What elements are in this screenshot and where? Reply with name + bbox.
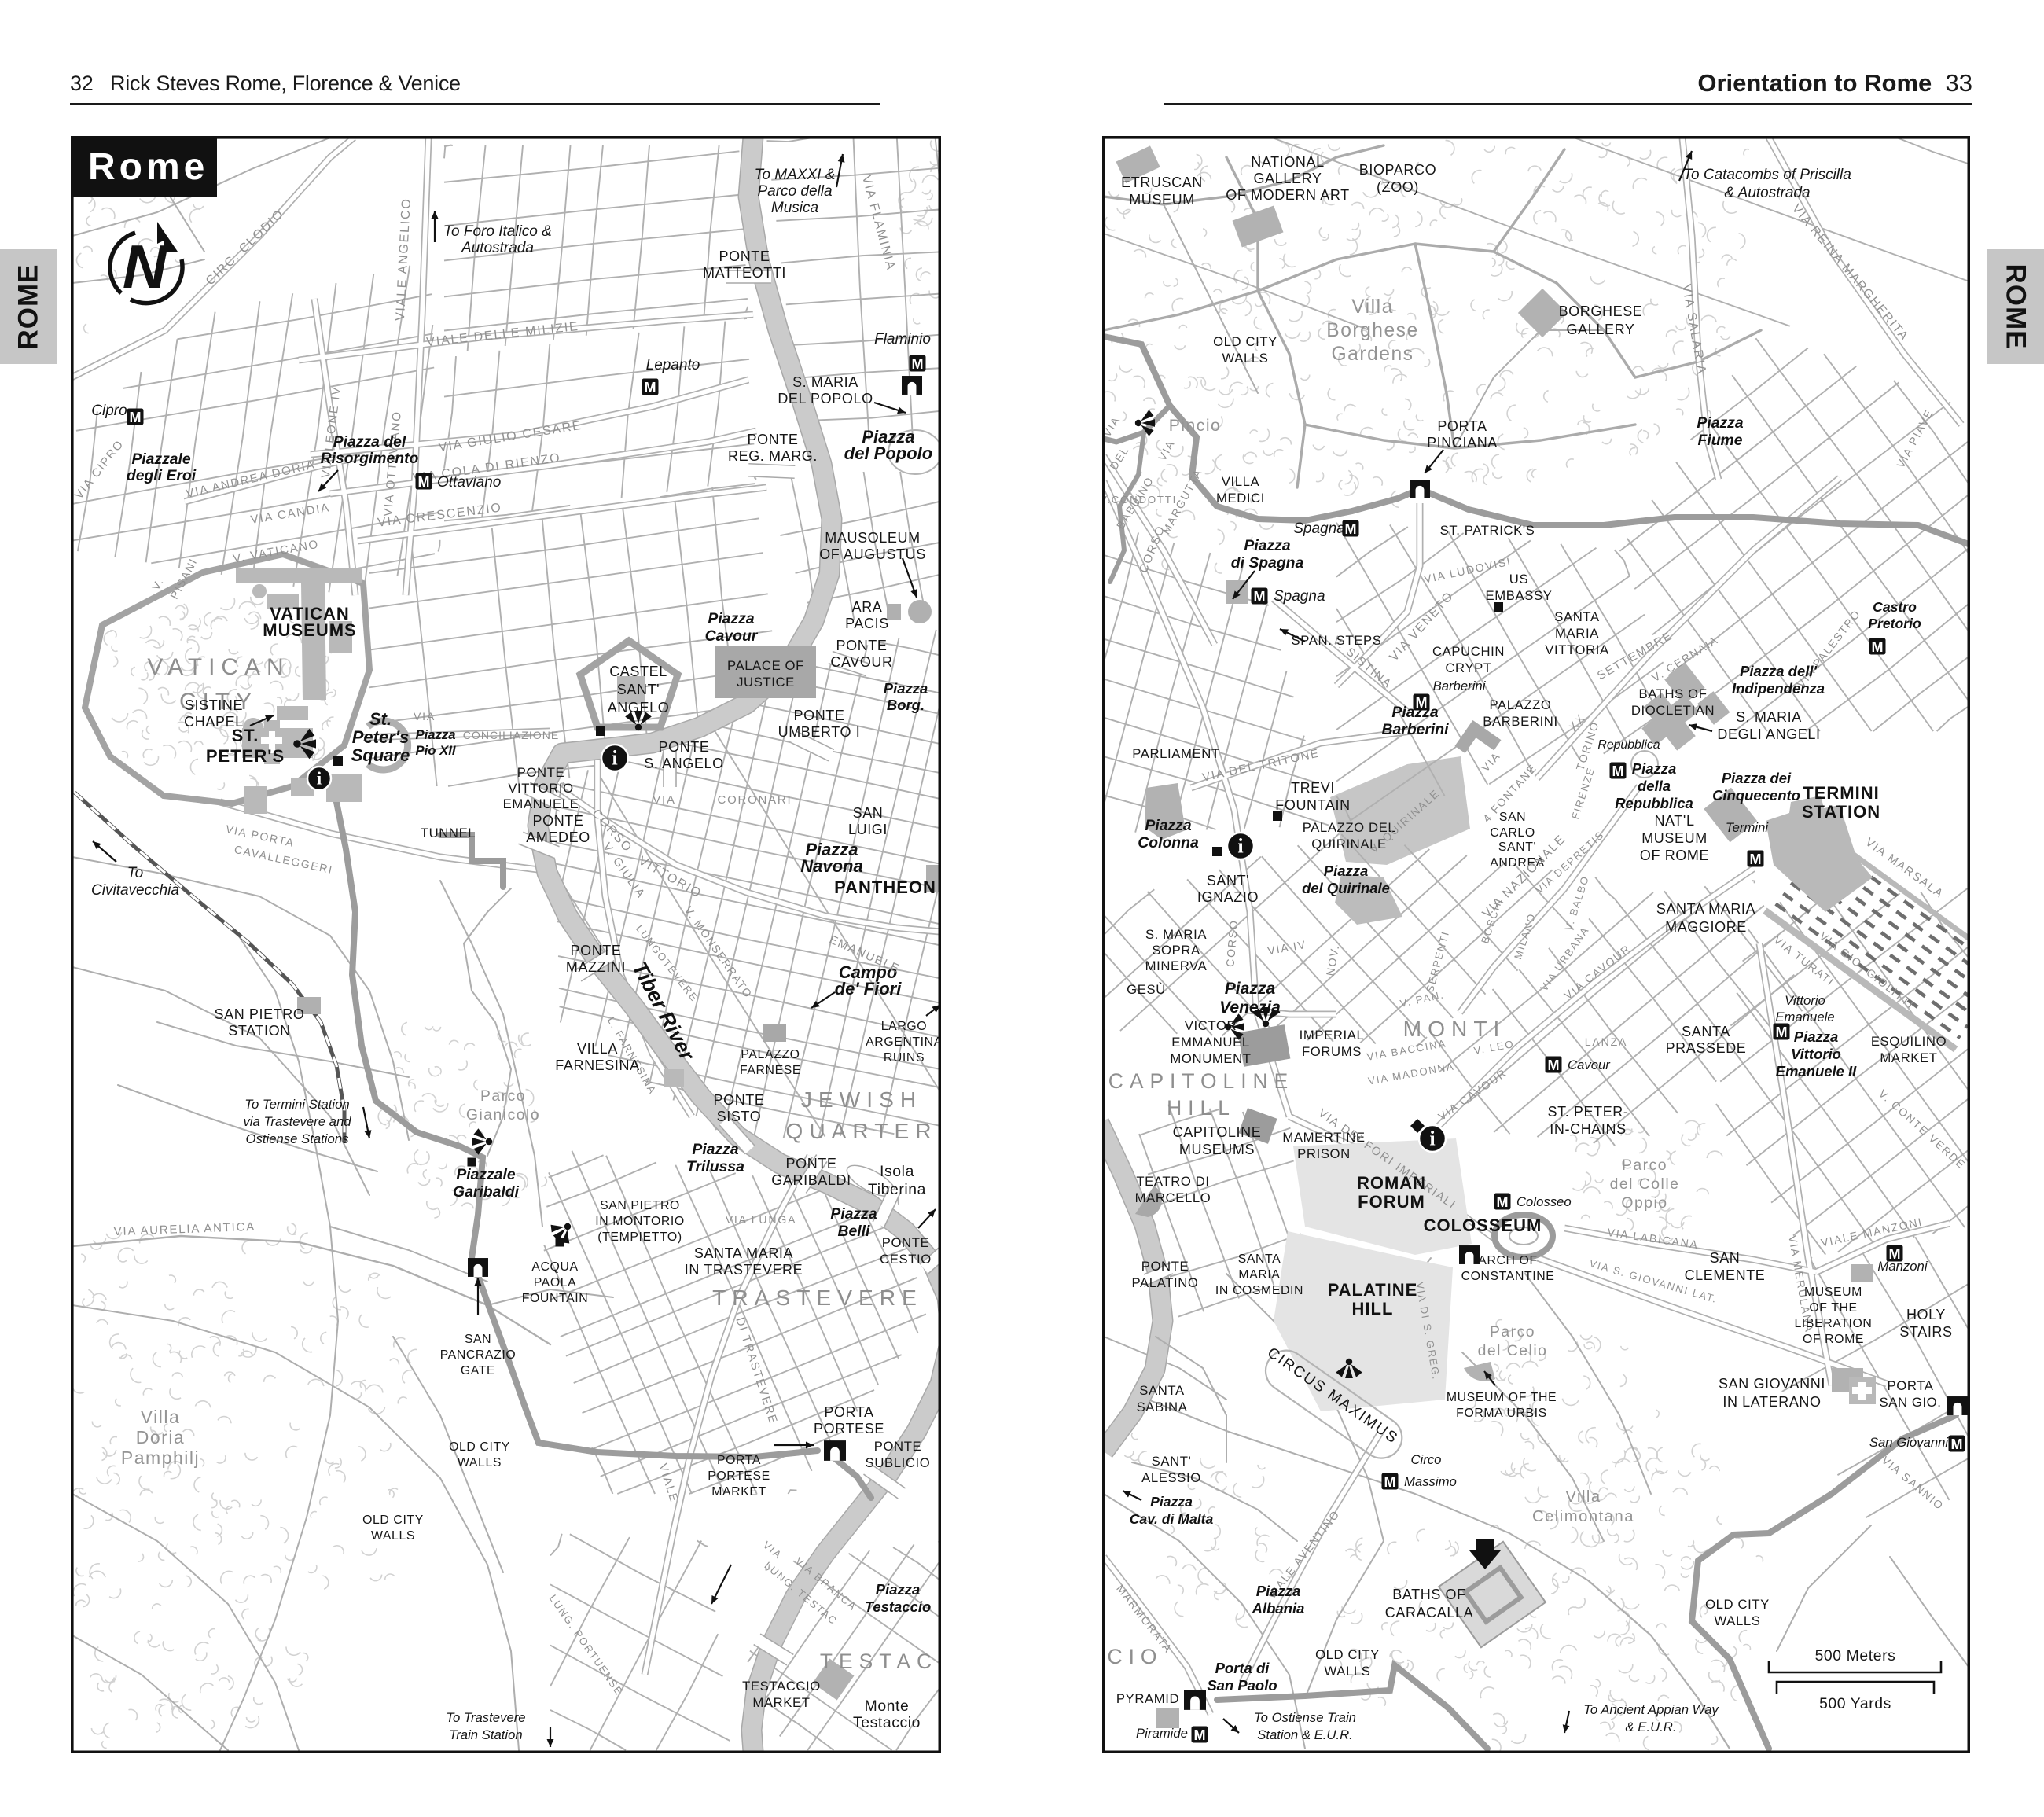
svg-text:M: M bbox=[417, 474, 429, 490]
svg-text:Spagna: Spagna bbox=[1293, 520, 1345, 537]
svg-text:VIA IV: VIA IV bbox=[1266, 938, 1307, 957]
svg-text:Celimontana: Celimontana bbox=[1532, 1508, 1634, 1525]
svg-text:M: M bbox=[1749, 851, 1761, 867]
svg-text:MARKET: MARKET bbox=[711, 1485, 766, 1499]
svg-text:OLD CITY: OLD CITY bbox=[1315, 1647, 1380, 1662]
svg-text:CLEMENTE: CLEMENTE bbox=[1685, 1267, 1766, 1283]
svg-text:Villa: Villa bbox=[1565, 1488, 1601, 1506]
svg-text:BATHS OF: BATHS OF bbox=[1638, 686, 1707, 701]
svg-text:VIA PIAVE: VIA PIAVE bbox=[1894, 406, 1936, 469]
svg-text:TUNNEL: TUNNEL bbox=[421, 826, 476, 840]
svg-text:VILLA: VILLA bbox=[1222, 474, 1260, 489]
svg-text:OF AUGUSTUS: OF AUGUSTUS bbox=[819, 546, 926, 562]
svg-text:WALLS: WALLS bbox=[371, 1529, 415, 1543]
svg-text:SANTA: SANTA bbox=[1238, 1252, 1281, 1266]
svg-text:PONTE: PONTE bbox=[517, 765, 565, 780]
svg-text:Barberini: Barberini bbox=[1382, 721, 1450, 738]
svg-text:STAIRS: STAIRS bbox=[1899, 1324, 1952, 1340]
svg-text:M: M bbox=[911, 356, 923, 372]
svg-text:CORONARI: CORONARI bbox=[718, 793, 792, 807]
svg-text:IN-CHAINS: IN-CHAINS bbox=[1550, 1121, 1626, 1137]
svg-text:Piazzale: Piazzale bbox=[456, 1166, 516, 1183]
svg-text:PONTE: PONTE bbox=[713, 1092, 764, 1108]
svg-text:M: M bbox=[644, 380, 656, 395]
svg-text:Borg.: Borg. bbox=[887, 697, 925, 713]
svg-text:SAN GIOVANNI: SAN GIOVANNI bbox=[1719, 1376, 1825, 1392]
svg-text:TRASTEVERE: TRASTEVERE bbox=[712, 1286, 923, 1310]
svg-text:MILANO: MILANO bbox=[1512, 911, 1538, 961]
svg-text:EMANUELE: EMANUELE bbox=[503, 796, 579, 811]
svg-text:EMMANUEL: EMMANUEL bbox=[1171, 1035, 1249, 1050]
svg-text:MUSEUM: MUSEUM bbox=[1129, 192, 1195, 208]
svg-text:ALESSIO: ALESSIO bbox=[1141, 1470, 1201, 1485]
svg-text:TERMINI: TERMINI bbox=[1803, 783, 1879, 803]
svg-text:i: i bbox=[612, 747, 617, 770]
svg-text:del Quirinale: del Quirinale bbox=[1302, 880, 1390, 896]
svg-text:Parco: Parco bbox=[480, 1087, 526, 1105]
svg-text:VIA: VIA bbox=[1102, 414, 1123, 439]
svg-text:LUNG. PORTUENSE: LUNG. PORTUENSE bbox=[547, 1593, 626, 1698]
svg-text:Cavour: Cavour bbox=[705, 627, 759, 645]
svg-text:STATION: STATION bbox=[228, 1023, 291, 1039]
svg-text:(ZOO): (ZOO) bbox=[1377, 179, 1419, 195]
svg-text:i: i bbox=[317, 769, 322, 789]
svg-text:Piazza: Piazza bbox=[1256, 1583, 1300, 1599]
svg-text:FORUM: FORUM bbox=[1358, 1192, 1425, 1212]
svg-text:MARKET: MARKET bbox=[1880, 1050, 1937, 1065]
svg-text:SAN: SAN bbox=[853, 805, 884, 821]
svg-text:PRASSEDE: PRASSEDE bbox=[1666, 1040, 1747, 1056]
svg-text:GESÙ: GESÙ bbox=[1127, 982, 1166, 997]
svg-text:Piazza: Piazza bbox=[1244, 537, 1290, 554]
svg-text:GALLERY: GALLERY bbox=[1254, 171, 1322, 186]
svg-text:CAVALLEGGERI: CAVALLEGGERI bbox=[233, 843, 335, 876]
svg-text:ARA: ARA bbox=[852, 599, 883, 615]
svg-text:del Popolo: del Popolo bbox=[844, 443, 932, 463]
svg-text:de' Fiori: de' Fiori bbox=[835, 979, 903, 999]
svg-text:PORTA: PORTA bbox=[824, 1404, 873, 1420]
svg-text:LANZA: LANZA bbox=[1585, 1035, 1627, 1048]
svg-text:FORMA URBIS: FORMA URBIS bbox=[1456, 1407, 1547, 1420]
svg-text:CONSTANTINE: CONSTANTINE bbox=[1461, 1270, 1555, 1283]
svg-text:PONTE: PONTE bbox=[785, 1156, 836, 1171]
svg-text:PALACE OF: PALACE OF bbox=[727, 658, 804, 673]
svg-text:MARIA: MARIA bbox=[1555, 626, 1599, 641]
svg-text:BORGHESE: BORGHESE bbox=[1559, 303, 1643, 319]
svg-text:San Giovanni: San Giovanni bbox=[1869, 1435, 1950, 1450]
svg-text:MUSEUMS: MUSEUMS bbox=[263, 620, 356, 640]
svg-text:PALATINE: PALATINE bbox=[1328, 1280, 1418, 1300]
svg-text:PORTESE: PORTESE bbox=[708, 1469, 770, 1483]
svg-text:VIA: VIA bbox=[1156, 437, 1177, 462]
svg-text:PACIS: PACIS bbox=[845, 616, 889, 631]
svg-text:GATE: GATE bbox=[461, 1364, 495, 1377]
svg-text:Pio XII: Pio XII bbox=[415, 743, 455, 758]
svg-text:M: M bbox=[1384, 1474, 1395, 1490]
svg-text:SAN: SAN bbox=[1710, 1250, 1741, 1266]
svg-text:Piazza: Piazza bbox=[708, 610, 754, 627]
svg-text:VITTORIA: VITTORIA bbox=[1545, 642, 1609, 657]
svg-text:FARNESE: FARNESE bbox=[740, 1064, 801, 1077]
svg-text:IN MONTORIO: IN MONTORIO bbox=[595, 1215, 685, 1228]
svg-text:IN LATERANO: IN LATERANO bbox=[1722, 1394, 1821, 1410]
svg-text:Station & E.U.R.: Station & E.U.R. bbox=[1257, 1727, 1353, 1742]
svg-text:PORTA: PORTA bbox=[717, 1454, 761, 1467]
svg-text:Ottaviano: Ottaviano bbox=[437, 474, 501, 491]
svg-text:US: US bbox=[1509, 572, 1528, 587]
svg-text:OLD CITY: OLD CITY bbox=[1705, 1597, 1770, 1612]
svg-text:Pamphilj: Pamphilj bbox=[121, 1447, 200, 1468]
svg-text:via Trastevere and: via Trastevere and bbox=[243, 1114, 351, 1129]
svg-text:Square: Square bbox=[351, 745, 410, 765]
svg-text:Villa: Villa bbox=[141, 1407, 181, 1427]
svg-text:OF MODERN ART: OF MODERN ART bbox=[1226, 187, 1349, 203]
svg-text:GALLERY: GALLERY bbox=[1567, 322, 1635, 337]
svg-text:Peter's: Peter's bbox=[352, 727, 410, 747]
svg-text:PONTE: PONTE bbox=[1141, 1259, 1189, 1274]
svg-text:MINERVA: MINERVA bbox=[1145, 958, 1208, 973]
svg-text:PONTE: PONTE bbox=[874, 1439, 922, 1454]
svg-text:SAN: SAN bbox=[1499, 811, 1526, 824]
svg-text:PAOLA: PAOLA bbox=[534, 1276, 577, 1289]
svg-text:To Trastevere: To Trastevere bbox=[446, 1710, 525, 1725]
svg-text:Piazza dei: Piazza dei bbox=[1722, 770, 1792, 786]
svg-text:CAPITOLINE: CAPITOLINE bbox=[1108, 1069, 1294, 1093]
svg-text:Cavour: Cavour bbox=[1568, 1057, 1611, 1072]
svg-text:OF ROME: OF ROME bbox=[1803, 1333, 1864, 1346]
svg-text:Colonna: Colonna bbox=[1138, 834, 1199, 851]
svg-text:CAPUCHIN: CAPUCHIN bbox=[1432, 644, 1505, 659]
svg-text:VIA CIPRO: VIA CIPRO bbox=[72, 437, 127, 502]
svg-text:Vittorio: Vittorio bbox=[1791, 1046, 1841, 1062]
svg-text:Oppio: Oppio bbox=[1621, 1194, 1667, 1212]
svg-text:CASTEL: CASTEL bbox=[609, 664, 667, 679]
svg-text:BATHS OF: BATHS OF bbox=[1392, 1587, 1465, 1602]
svg-text:Testaccio: Testaccio bbox=[853, 1714, 921, 1731]
svg-text:To Ancient Appian Way: To Ancient Appian Way bbox=[1583, 1702, 1719, 1717]
svg-text:SANT': SANT' bbox=[1207, 873, 1249, 888]
svg-text:Garibaldi: Garibaldi bbox=[453, 1183, 520, 1201]
svg-text:SISTINE: SISTINE bbox=[185, 697, 243, 713]
svg-text:HILL: HILL bbox=[1352, 1299, 1394, 1319]
svg-text:Borghese: Borghese bbox=[1326, 320, 1418, 341]
svg-text:del Celio: del Celio bbox=[1478, 1342, 1548, 1359]
svg-text:PONTE: PONTE bbox=[793, 708, 844, 723]
svg-text:PORTA: PORTA bbox=[1888, 1378, 1934, 1393]
svg-text:VIA CAVOUR: VIA CAVOUR bbox=[1436, 1066, 1509, 1123]
svg-text:SAN: SAN bbox=[465, 1333, 491, 1346]
svg-text:EMBASSY: EMBASSY bbox=[1486, 588, 1553, 603]
svg-text:Flaminio: Flaminio bbox=[874, 331, 931, 348]
svg-text:VIA: VIA bbox=[1479, 749, 1503, 774]
svg-text:Risorgimento: Risorgimento bbox=[321, 450, 419, 467]
svg-text:BARBERINI: BARBERINI bbox=[1483, 714, 1557, 729]
svg-text:AMEDEO: AMEDEO bbox=[526, 829, 590, 845]
svg-text:Circo: Circo bbox=[1411, 1452, 1442, 1467]
svg-text:Fiume: Fiume bbox=[1697, 432, 1742, 449]
svg-text:CAPITOLINE: CAPITOLINE bbox=[1173, 1124, 1262, 1140]
svg-text:Pincio: Pincio bbox=[1169, 417, 1222, 435]
svg-text:ROMAN: ROMAN bbox=[1357, 1173, 1426, 1193]
svg-text:DEL: DEL bbox=[1107, 443, 1131, 472]
svg-text:IMPERIAL: IMPERIAL bbox=[1300, 1028, 1365, 1043]
svg-text:Piazza: Piazza bbox=[1225, 980, 1276, 998]
svg-text:DIOCLETIAN: DIOCLETIAN bbox=[1631, 703, 1715, 718]
svg-text:VILLA: VILLA bbox=[577, 1041, 618, 1057]
svg-text:ST. PATRICK'S: ST. PATRICK'S bbox=[1440, 523, 1535, 538]
svg-text:SERPENTI: SERPENTI bbox=[1424, 929, 1451, 994]
svg-text:BIOPARCO: BIOPARCO bbox=[1359, 162, 1436, 178]
svg-text:SANT': SANT' bbox=[1152, 1454, 1192, 1469]
svg-text:Piazzale: Piazzale bbox=[131, 451, 191, 468]
svg-text:SANTA MARIA: SANTA MARIA bbox=[694, 1245, 793, 1261]
svg-text:PORTA: PORTA bbox=[1437, 418, 1487, 434]
svg-text:S. MARIA: S. MARIA bbox=[1736, 709, 1802, 725]
svg-text:Piazza: Piazza bbox=[1150, 1494, 1193, 1510]
svg-text:SUBLICIO: SUBLICIO bbox=[866, 1455, 931, 1470]
svg-text:Piazza: Piazza bbox=[1324, 863, 1368, 879]
svg-text:PRISON: PRISON bbox=[1297, 1146, 1351, 1161]
svg-text:CRYPT: CRYPT bbox=[1445, 660, 1491, 675]
svg-text:LARGO: LARGO bbox=[881, 1020, 927, 1033]
svg-text:Autostrada: Autostrada bbox=[461, 240, 534, 256]
svg-text:Doria: Doria bbox=[136, 1427, 185, 1447]
svg-text:N: N bbox=[123, 232, 168, 301]
svg-text:ST. PETER-: ST. PETER- bbox=[1547, 1104, 1628, 1120]
svg-text:STATION: STATION bbox=[1802, 802, 1880, 822]
svg-text:BOSCH.: BOSCH. bbox=[1479, 896, 1505, 945]
svg-text:Cinquecento: Cinquecento bbox=[1712, 787, 1800, 804]
svg-text:PALAZZO: PALAZZO bbox=[1489, 697, 1551, 712]
svg-text:DEL POPOLO: DEL POPOLO bbox=[778, 391, 873, 406]
svg-text:WALLS: WALLS bbox=[458, 1456, 502, 1469]
svg-text:VIA: VIA bbox=[653, 793, 676, 807]
svg-text:Porta di: Porta di bbox=[1215, 1660, 1270, 1676]
svg-text:Spagna: Spagna bbox=[1274, 588, 1325, 605]
svg-text:di Spagna: di Spagna bbox=[1231, 554, 1304, 572]
svg-text:Pretorio: Pretorio bbox=[1868, 616, 1921, 631]
svg-text:Piazza: Piazza bbox=[692, 1141, 738, 1158]
svg-text:VIA MADONNA: VIA MADONNA bbox=[1367, 1061, 1455, 1087]
svg-text:PINCIANA: PINCIANA bbox=[1427, 435, 1498, 451]
svg-text:MUSEUM: MUSEUM bbox=[1641, 830, 1708, 846]
svg-text:Colosseo: Colosseo bbox=[1516, 1194, 1572, 1209]
svg-text:Isola: Isola bbox=[880, 1163, 914, 1180]
svg-text:CORSO: CORSO bbox=[1223, 919, 1240, 968]
svg-text:della: della bbox=[1638, 778, 1671, 794]
svg-text:Navona: Navona bbox=[800, 856, 862, 876]
svg-text:M: M bbox=[1775, 1024, 1787, 1040]
svg-text:Ostiense Stations: Ostiense Stations bbox=[246, 1131, 350, 1146]
svg-text:VIALE: VIALE bbox=[656, 1462, 681, 1505]
svg-text:To Termini Station: To Termini Station bbox=[244, 1097, 349, 1112]
svg-text:TEATRO DI: TEATRO DI bbox=[1136, 1174, 1209, 1189]
svg-text:Massimo: Massimo bbox=[1404, 1474, 1457, 1489]
svg-text:(TEMPIETTO): (TEMPIETTO) bbox=[597, 1230, 682, 1244]
svg-text:Piazza dell': Piazza dell' bbox=[1740, 663, 1817, 679]
svg-text:UMBERTO I: UMBERTO I bbox=[778, 724, 861, 740]
svg-text:degli Eroi: degli Eroi bbox=[127, 467, 197, 484]
svg-text:PORTESE: PORTESE bbox=[814, 1421, 884, 1436]
svg-text:ESQUILINO: ESQUILINO bbox=[1871, 1034, 1947, 1049]
svg-text:Tiberina: Tiberina bbox=[868, 1181, 926, 1198]
svg-text:i: i bbox=[1429, 1127, 1435, 1150]
svg-text:SANTA: SANTA bbox=[1682, 1024, 1730, 1039]
svg-text:SAN GIO.: SAN GIO. bbox=[1879, 1395, 1941, 1410]
svg-text:Termini: Termini bbox=[1726, 820, 1769, 835]
svg-text:HOLY: HOLY bbox=[1906, 1307, 1946, 1322]
svg-text:Gianicolo: Gianicolo bbox=[466, 1106, 540, 1124]
svg-text:SAN PIETRO: SAN PIETRO bbox=[600, 1199, 680, 1212]
svg-text:PARLIAMENT: PARLIAMENT bbox=[1132, 746, 1220, 761]
svg-text:VICTOR: VICTOR bbox=[1185, 1018, 1237, 1033]
svg-text:MARKET: MARKET bbox=[752, 1695, 810, 1710]
svg-text:Parco: Parco bbox=[1490, 1323, 1535, 1341]
svg-text:M: M bbox=[1344, 521, 1356, 537]
svg-text:OLD CITY: OLD CITY bbox=[362, 1514, 424, 1527]
svg-text:PONTE: PONTE bbox=[658, 739, 709, 755]
svg-text:VIA GIO. GIOLITTI: VIA GIO. GIOLITTI bbox=[1818, 929, 1917, 1011]
svg-text:LIBERATION: LIBERATION bbox=[1795, 1317, 1873, 1330]
svg-text:CARLO: CARLO bbox=[1490, 826, 1535, 840]
svg-text:MAGGIORE: MAGGIORE bbox=[1665, 919, 1747, 935]
svg-text:LUIGI: LUIGI bbox=[848, 822, 888, 837]
svg-text:Parco: Parco bbox=[1622, 1157, 1667, 1174]
svg-text:PONTE: PONTE bbox=[836, 638, 887, 653]
svg-text:IN TRASTEVERE: IN TRASTEVERE bbox=[685, 1262, 803, 1278]
svg-text:MARCELLO: MARCELLO bbox=[1135, 1190, 1211, 1205]
svg-text:To Ostiense Train: To Ostiense Train bbox=[1254, 1710, 1356, 1725]
svg-text:Piramide: Piramide bbox=[1136, 1726, 1188, 1741]
svg-text:M: M bbox=[1871, 639, 1883, 655]
svg-text:MUSEUM OF THE: MUSEUM OF THE bbox=[1447, 1391, 1557, 1404]
svg-text:Parco della: Parco della bbox=[757, 183, 832, 200]
svg-text:FIRENZE: FIRENZE bbox=[1569, 765, 1597, 820]
svg-text:PALATINO: PALATINO bbox=[1132, 1275, 1199, 1290]
svg-text:Rome: Rome bbox=[88, 146, 208, 188]
svg-text:PYRAMID: PYRAMID bbox=[1116, 1691, 1179, 1706]
svg-text:VIA LUDOVISI: VIA LUDOVISI bbox=[1423, 555, 1513, 586]
svg-text:& E.U.R.: & E.U.R. bbox=[1626, 1720, 1677, 1734]
svg-text:TESTACCIO: TESTACCIO bbox=[742, 1679, 821, 1694]
svg-text:WALLS: WALLS bbox=[1324, 1664, 1370, 1679]
svg-text:VIA BACCINA: VIA BACCINA bbox=[1366, 1037, 1447, 1063]
svg-text:WALLS: WALLS bbox=[1222, 351, 1268, 366]
svg-text:Trilussa: Trilussa bbox=[686, 1158, 744, 1175]
svg-text:DI TRASTEVERE: DI TRASTEVERE bbox=[733, 1315, 780, 1425]
svg-text:Albania: Albania bbox=[1252, 1600, 1305, 1617]
svg-text:SAN PIETRO: SAN PIETRO bbox=[214, 1006, 304, 1022]
svg-text:OLD CITY: OLD CITY bbox=[1213, 334, 1277, 349]
svg-text:PONTE: PONTE bbox=[747, 432, 798, 447]
svg-text:MARIA: MARIA bbox=[1238, 1268, 1280, 1282]
svg-text:MONUMENT: MONUMENT bbox=[1170, 1051, 1251, 1066]
svg-text:VITTORIO: VITTORIO bbox=[508, 781, 573, 796]
svg-text:VIA AURELIA ANTICA: VIA AURELIA ANTICA bbox=[113, 1220, 256, 1238]
svg-text:TESTAC: TESTAC bbox=[820, 1650, 938, 1673]
svg-text:MATTEOTTI: MATTEOTTI bbox=[703, 265, 786, 281]
svg-text:S. MARIA: S. MARIA bbox=[1145, 927, 1207, 942]
svg-text:St.: St. bbox=[369, 709, 392, 729]
svg-text:Piazza: Piazza bbox=[830, 1205, 877, 1223]
svg-text:Piazza: Piazza bbox=[1794, 1028, 1838, 1045]
svg-text:RUINS: RUINS bbox=[884, 1051, 925, 1065]
svg-text:Cav. di Malta: Cav. di Malta bbox=[1130, 1511, 1214, 1527]
svg-text:500 Meters: 500 Meters bbox=[1815, 1647, 1896, 1664]
svg-text:MUSEUMS: MUSEUMS bbox=[1179, 1142, 1255, 1157]
svg-text:ARGENTINA: ARGENTINA bbox=[866, 1035, 941, 1049]
svg-text:MAUSOLEUM: MAUSOLEUM bbox=[825, 530, 920, 546]
svg-text:V.CONDOTTI: V.CONDOTTI bbox=[1102, 494, 1177, 506]
svg-text:& Autostrada: & Autostrada bbox=[1724, 185, 1810, 201]
svg-text:TREVI: TREVI bbox=[1291, 780, 1335, 796]
svg-text:MAZZINI: MAZZINI bbox=[566, 959, 626, 975]
svg-text:JUSTICE: JUSTICE bbox=[737, 675, 795, 690]
svg-text:VIA LUNGA: VIA LUNGA bbox=[726, 1213, 797, 1226]
svg-text:Indipendenza: Indipendenza bbox=[1732, 680, 1825, 697]
svg-text:WALLS: WALLS bbox=[1714, 1613, 1760, 1628]
svg-text:PALAZZO: PALAZZO bbox=[741, 1048, 800, 1061]
svg-text:PANCRAZIO: PANCRAZIO bbox=[440, 1348, 517, 1362]
svg-text:REG. MARG.: REG. MARG. bbox=[728, 448, 818, 464]
svg-text:FORUMS: FORUMS bbox=[1302, 1044, 1362, 1059]
svg-text:PONTE: PONTE bbox=[570, 943, 621, 958]
svg-text:CARACALLA: CARACALLA bbox=[1385, 1605, 1473, 1620]
svg-text:Emanuele II: Emanuele II bbox=[1776, 1063, 1858, 1080]
svg-text:M: M bbox=[1612, 763, 1623, 779]
svg-text:M: M bbox=[1547, 1057, 1559, 1073]
svg-text:VATICAN: VATICAN bbox=[147, 654, 289, 680]
svg-text:M: M bbox=[129, 410, 141, 425]
svg-text:VIA: VIA bbox=[414, 710, 436, 723]
svg-text:To Catacombs of Priscilla: To Catacombs of Priscilla bbox=[1683, 167, 1851, 183]
svg-text:Belli: Belli bbox=[838, 1223, 871, 1240]
svg-text:M: M bbox=[1193, 1727, 1205, 1743]
svg-text:San Paolo: San Paolo bbox=[1207, 1677, 1277, 1694]
svg-text:CIO: CIO bbox=[1108, 1645, 1164, 1668]
svg-text:IGNAZIO: IGNAZIO bbox=[1197, 889, 1259, 905]
svg-text:VIA: VIA bbox=[761, 1539, 785, 1561]
svg-text:500 Yards: 500 Yards bbox=[1819, 1695, 1891, 1712]
svg-text:JEWISH: JEWISH bbox=[801, 1087, 922, 1112]
svg-text:Repubblica: Repubblica bbox=[1597, 738, 1660, 752]
svg-text:NOV.: NOV. bbox=[1324, 943, 1342, 977]
svg-text:CAVOUR: CAVOUR bbox=[830, 654, 892, 670]
svg-text:Piazza: Piazza bbox=[876, 1581, 920, 1598]
svg-text:FOUNTAIN: FOUNTAIN bbox=[1275, 797, 1350, 813]
svg-text:Cipro: Cipro bbox=[91, 403, 127, 419]
svg-text:Vittorio: Vittorio bbox=[1785, 993, 1825, 1008]
svg-text:GARIBALDI: GARIBALDI bbox=[771, 1172, 851, 1188]
svg-text:To MAXXI &: To MAXXI & bbox=[755, 167, 836, 183]
svg-text:PANTHEON: PANTHEON bbox=[834, 877, 936, 897]
svg-text:i: i bbox=[1237, 835, 1243, 858]
svg-text:SABINA: SABINA bbox=[1137, 1400, 1188, 1414]
svg-text:VIA FLAMINIA: VIA FLAMINIA bbox=[859, 174, 898, 272]
svg-text:M: M bbox=[1253, 589, 1265, 605]
svg-text:SANTA MARIA: SANTA MARIA bbox=[1656, 901, 1755, 917]
svg-text:Barberini: Barberini bbox=[1433, 679, 1487, 693]
svg-text:Civitavecchia: Civitavecchia bbox=[91, 882, 179, 899]
svg-text:Piazza: Piazza bbox=[884, 680, 928, 697]
svg-text:del Colle: del Colle bbox=[1610, 1175, 1680, 1193]
svg-text:OF THE: OF THE bbox=[1809, 1301, 1857, 1315]
svg-text:M: M bbox=[1950, 1436, 1962, 1452]
svg-text:Testaccio: Testaccio bbox=[865, 1598, 932, 1615]
svg-text:SANTA: SANTA bbox=[1554, 609, 1600, 624]
svg-text:Train Station: Train Station bbox=[449, 1727, 522, 1742]
svg-text:OLD CITY: OLD CITY bbox=[449, 1440, 510, 1454]
